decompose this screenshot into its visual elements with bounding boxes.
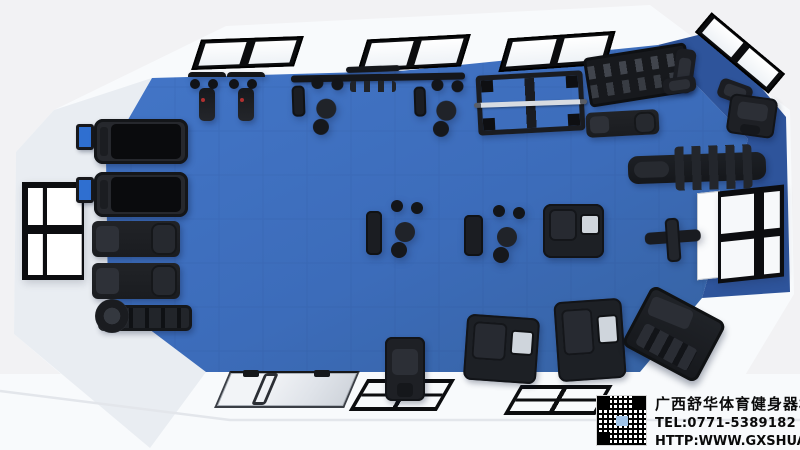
equipment-layer — [0, 0, 800, 450]
gym-3d-render: 广西舒华体育健身器材有限公司 TEL:0771-5389182 HTTP:WWW… — [0, 0, 800, 450]
back-extension-bench — [585, 109, 659, 138]
entrance-glass-door — [214, 371, 360, 408]
window-right — [718, 185, 784, 284]
watermark-text: 广西舒华体育健身器材有限公司 TEL:0771-5389182 HTTP:WWW… — [655, 396, 800, 449]
website-url: HTTP:WWW.GXSHUA.COM — [655, 434, 800, 449]
door-closer-1 — [243, 370, 259, 377]
selectorized-machine-3 — [463, 314, 540, 385]
window-left — [22, 182, 84, 280]
selectorized-machine-4 — [553, 298, 626, 383]
situp-bench-row — [628, 152, 767, 185]
treadmill-screen-1 — [76, 124, 94, 150]
wavy-pullup-bar — [346, 65, 400, 73]
lat-pulldown-machine — [644, 216, 703, 264]
skylight-1 — [191, 36, 304, 70]
qr-code — [597, 396, 646, 445]
hack-squat-machine — [621, 284, 727, 383]
spin-bike-1 — [188, 72, 226, 126]
selectorized-machine-2 — [385, 337, 425, 401]
treadmill-1 — [94, 119, 188, 164]
spin-bike-2 — [227, 72, 265, 126]
rig-station-2 — [413, 78, 461, 125]
seated-row-machine-2 — [92, 263, 180, 299]
rig-station-1 — [291, 76, 343, 125]
phone-number: TEL:0771-5389182 — [655, 416, 800, 431]
rig-pullup-handles — [350, 81, 396, 92]
flat-bench-1 — [662, 75, 697, 95]
selectorized-machine-1 — [543, 204, 604, 258]
corner-machine — [725, 93, 778, 139]
seated-row-machine-1 — [92, 221, 180, 257]
treadmill-screen-2 — [76, 177, 94, 203]
skylight-4 — [695, 12, 785, 94]
cable-machine-2 — [464, 205, 537, 267]
cable-machine-1 — [366, 200, 428, 267]
door-closer-2 — [314, 370, 330, 377]
watermark: 广西舒华体育健身器材有限公司 TEL:0771-5389182 HTTP:WWW… — [597, 396, 800, 449]
treadmill-2 — [94, 172, 188, 217]
company-name: 广西舒华体育健身器材有限公司 — [655, 396, 800, 413]
air-rower — [98, 305, 192, 331]
